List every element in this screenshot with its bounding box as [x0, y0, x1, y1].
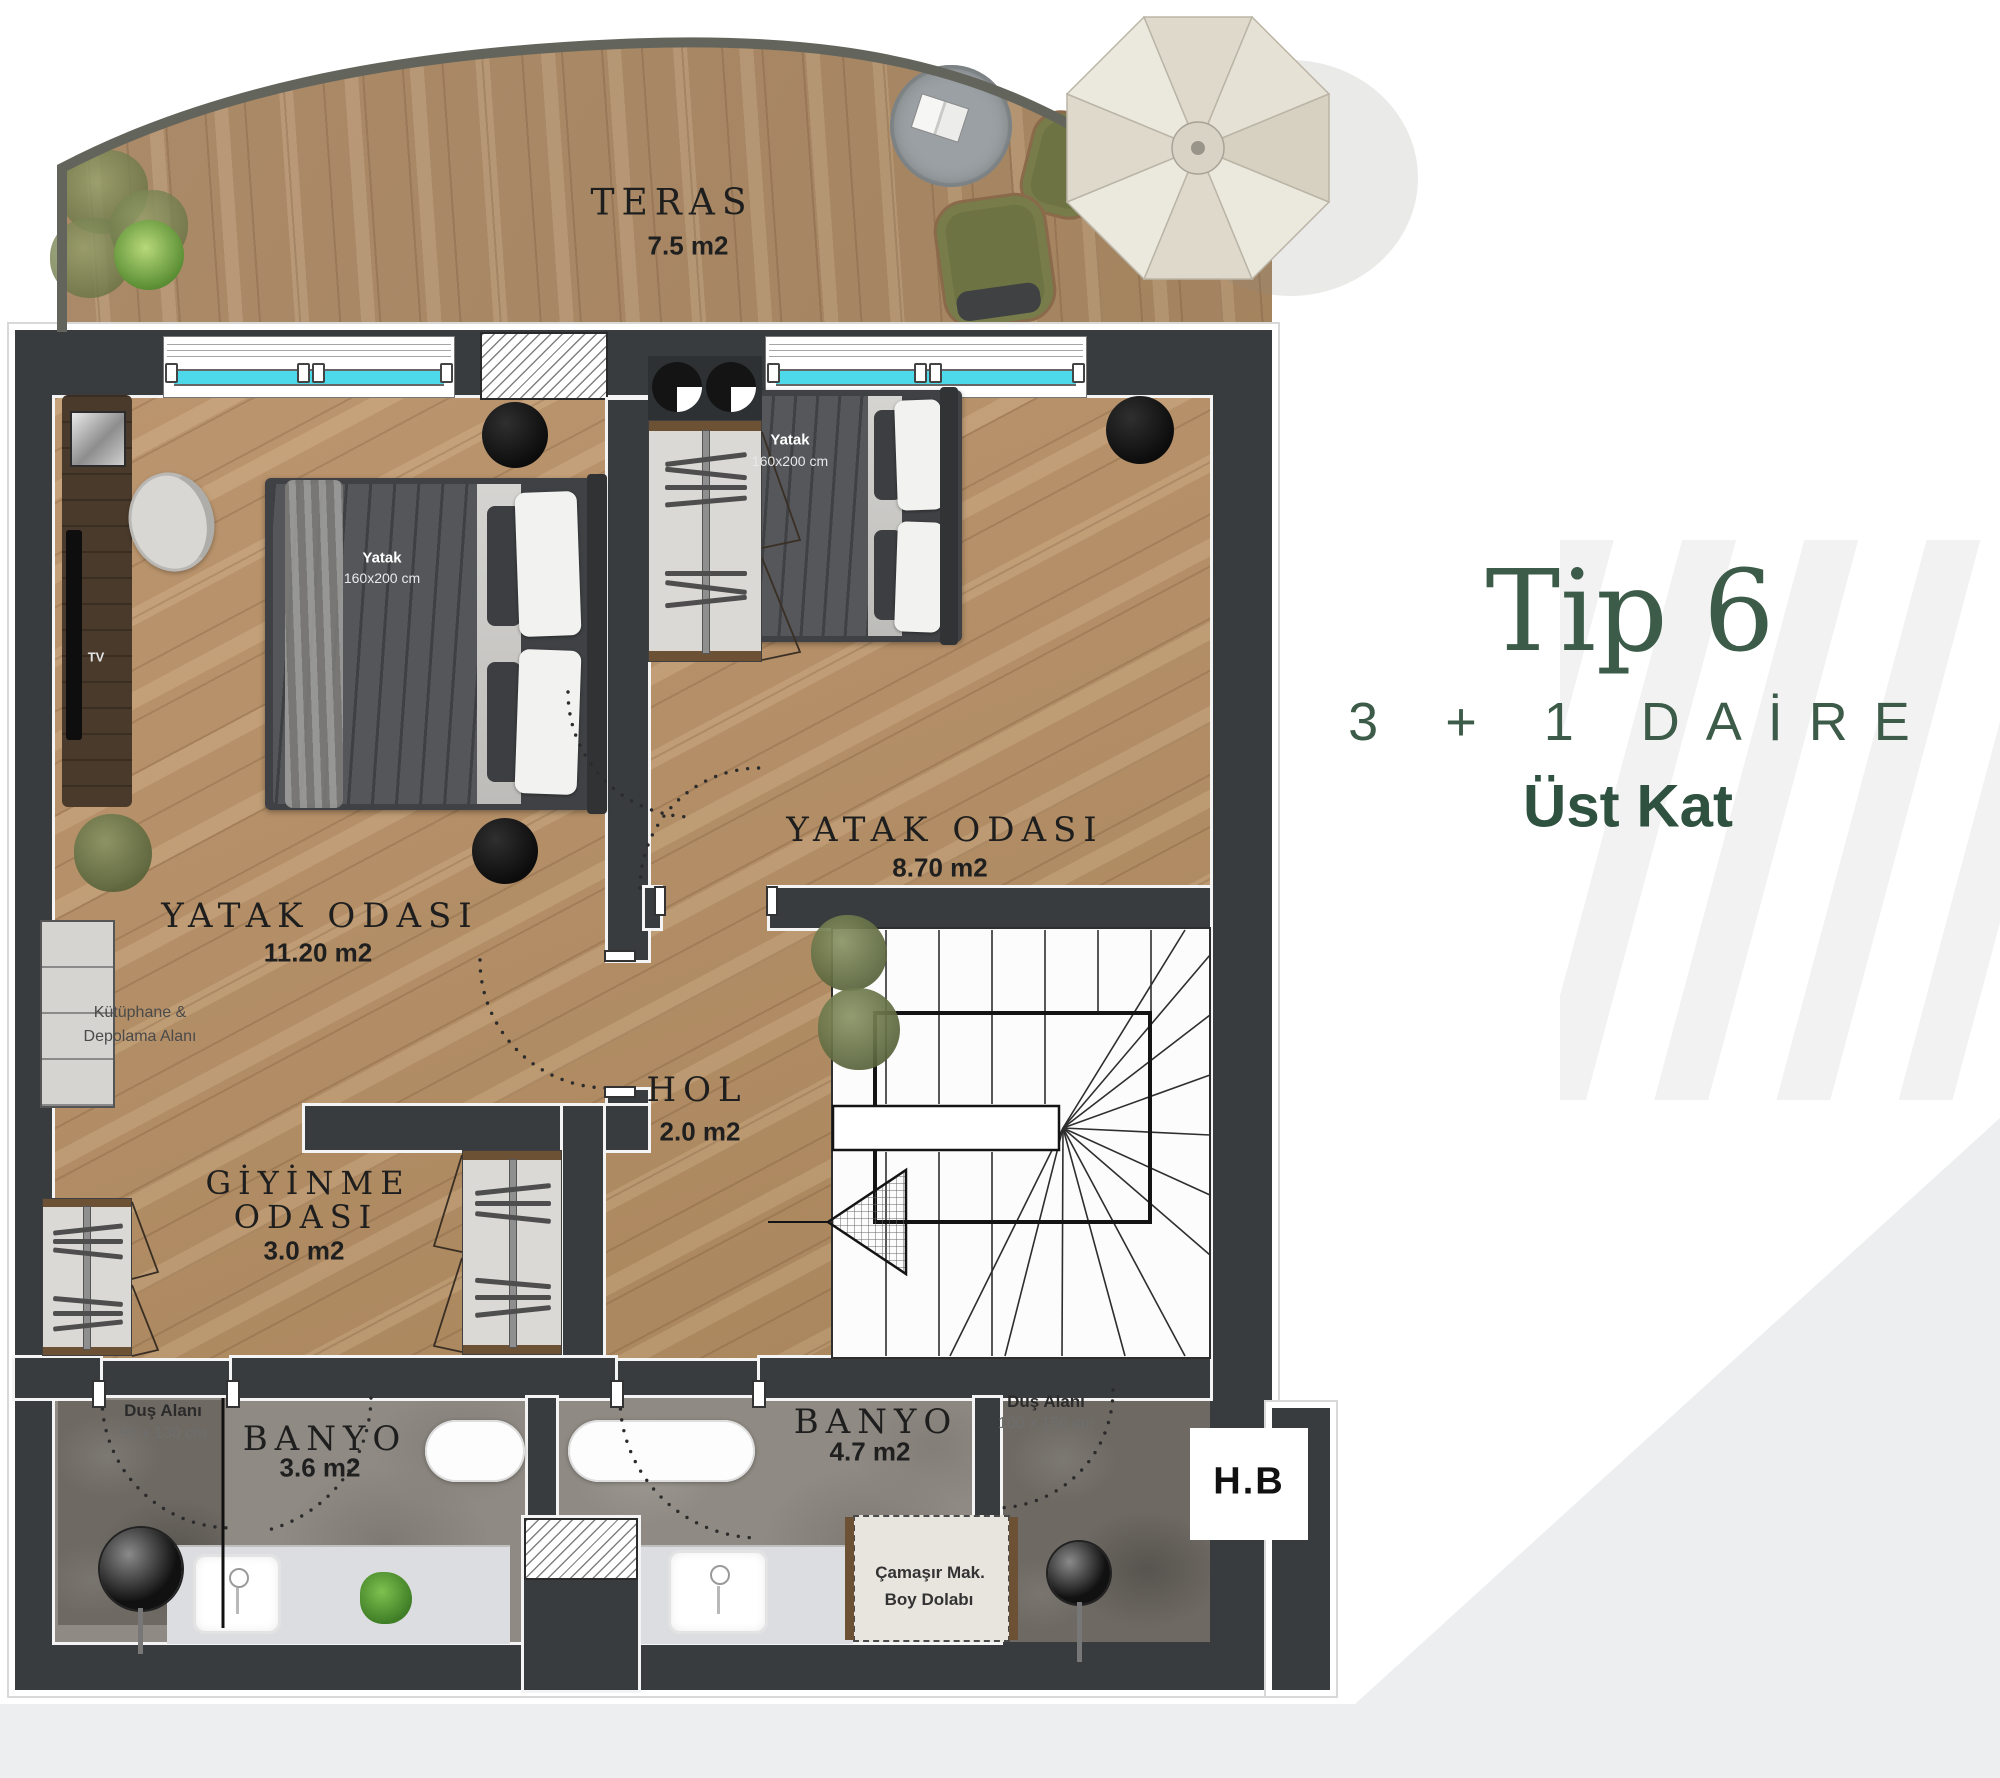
- room-area-bath-left: 3.6 m2: [280, 1453, 361, 1484]
- room-label-bedroom-left: YATAK ODASI: [161, 896, 479, 936]
- room-label-dressing-1: GİYİNME: [205, 1164, 410, 1202]
- bed-label-left-1: Yatak: [362, 550, 401, 567]
- room-area-dressing: 3.0 m2: [264, 1236, 345, 1267]
- bed-label-left-2: 160x200 cm: [344, 570, 420, 586]
- hb-label: H.B: [1213, 1461, 1284, 1504]
- laundry-label-2: Boy Dolabı: [885, 1590, 974, 1610]
- room-area-bath-right: 4.7 m2: [830, 1437, 911, 1468]
- room-label-dressing-2: ODASI: [234, 1198, 379, 1236]
- umbrella-icon: [1067, 17, 1418, 296]
- room-area-teras: 7.5 m2: [648, 231, 729, 262]
- shower-label-right-2: 100 x 150 cm: [998, 1415, 1094, 1433]
- plant-icon: [74, 814, 152, 892]
- plant-icon: [811, 915, 887, 991]
- plan-title: Tip 6: [1485, 547, 1774, 677]
- room-area-bedroom-left: 11.20 m2: [264, 938, 372, 969]
- door-arc: [480, 960, 608, 1088]
- staircase-icon: [768, 928, 1210, 1358]
- tv-label: TV: [88, 650, 105, 665]
- door-arc: [620, 1398, 760, 1538]
- plan-floor-label: Üst Kat: [1523, 772, 1733, 841]
- door-arc: [640, 768, 760, 888]
- room-label-teras: TERAS: [590, 183, 753, 224]
- shower-label-left-2: 90 x 130 cm: [119, 1425, 206, 1443]
- plant-icon: [818, 988, 900, 1070]
- floor-plan-page: TERAS 7.5 m2 YATAK ODASI 11.20 m2 YATAK …: [0, 0, 2000, 1778]
- room-label-bedroom-right: YATAK ODASI: [786, 810, 1104, 850]
- laundry-label-1: Çamaşır Mak.: [875, 1563, 985, 1583]
- door-arc: [568, 692, 693, 817]
- room-label-hol: HOL: [646, 1070, 747, 1110]
- room-area-bedroom-right: 8.70 m2: [892, 853, 987, 884]
- plan-overlay: [0, 0, 2000, 1778]
- room-area-hol: 2.0 m2: [660, 1117, 741, 1148]
- shower-label-right-1: Duş Alanı: [1007, 1392, 1085, 1412]
- bed-label-right-1: Yatak: [770, 432, 809, 449]
- library-label-2: Depolama Alanı: [84, 1028, 197, 1046]
- shower-label-left-1: Duş Alanı: [124, 1401, 202, 1421]
- bed-label-right-2: 160x200 cm: [752, 453, 828, 469]
- library-label-1: Kütüphane &: [94, 1004, 187, 1022]
- plan-subtitle: 3 + 1 DAİRE: [1348, 691, 1936, 753]
- plant-icon: [360, 1572, 412, 1624]
